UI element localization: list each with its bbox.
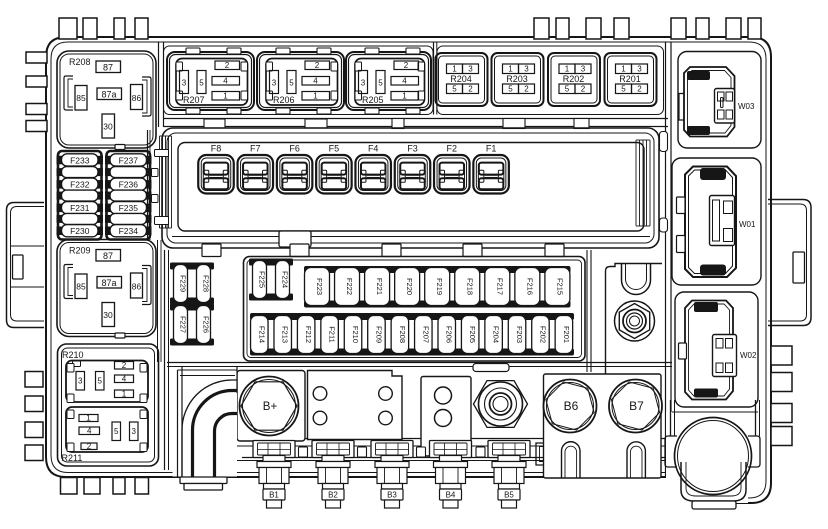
svg-text:F210: F210 xyxy=(351,326,360,343)
svg-text:F222: F222 xyxy=(345,278,354,295)
svg-text:R202: R202 xyxy=(563,74,585,84)
svg-text:3: 3 xyxy=(131,427,136,436)
svg-text:F231: F231 xyxy=(70,203,90,213)
svg-text:87: 87 xyxy=(103,63,113,73)
svg-text:3: 3 xyxy=(468,65,473,74)
svg-text:3: 3 xyxy=(361,79,366,88)
svg-text:4: 4 xyxy=(402,77,407,86)
svg-text:F213: F213 xyxy=(281,326,290,343)
svg-text:5: 5 xyxy=(452,85,457,94)
svg-text:F220: F220 xyxy=(405,278,414,295)
svg-text:1: 1 xyxy=(86,414,91,423)
svg-text:B6: B6 xyxy=(564,399,579,413)
svg-text:F223: F223 xyxy=(315,278,324,295)
svg-text:30: 30 xyxy=(103,310,113,320)
svg-text:5: 5 xyxy=(508,85,513,94)
svg-text:F4: F4 xyxy=(368,144,379,154)
svg-text:85: 85 xyxy=(76,282,86,292)
svg-text:2: 2 xyxy=(122,361,127,370)
svg-text:2: 2 xyxy=(581,85,586,94)
svg-text:1: 1 xyxy=(565,65,570,74)
svg-text:2: 2 xyxy=(468,85,473,94)
svg-text:R203: R203 xyxy=(506,74,528,84)
svg-text:3: 3 xyxy=(581,65,586,74)
svg-text:F209: F209 xyxy=(374,326,383,343)
svg-text:R201: R201 xyxy=(619,74,641,84)
svg-text:85: 85 xyxy=(76,93,86,103)
svg-text:F206: F206 xyxy=(445,326,454,343)
svg-text:F224: F224 xyxy=(281,271,290,288)
svg-text:3: 3 xyxy=(637,65,642,74)
svg-text:F227: F227 xyxy=(179,316,188,333)
svg-text:1: 1 xyxy=(621,65,626,74)
svg-text:F228: F228 xyxy=(202,275,211,292)
svg-text:B7: B7 xyxy=(629,399,644,413)
svg-text:5: 5 xyxy=(114,427,119,436)
svg-text:5: 5 xyxy=(97,377,102,386)
svg-text:F203: F203 xyxy=(515,326,524,343)
svg-text:1: 1 xyxy=(313,92,318,101)
svg-text:87a: 87a xyxy=(101,90,116,100)
svg-text:3: 3 xyxy=(182,79,187,88)
svg-text:F212: F212 xyxy=(304,326,313,343)
svg-text:F8: F8 xyxy=(211,144,222,154)
svg-text:F1: F1 xyxy=(486,144,497,154)
svg-text:4: 4 xyxy=(223,77,228,86)
svg-text:1: 1 xyxy=(402,92,407,101)
svg-text:B5: B5 xyxy=(504,491,514,500)
svg-text:2: 2 xyxy=(225,61,230,70)
svg-text:F237: F237 xyxy=(119,155,139,165)
svg-text:F2: F2 xyxy=(447,144,458,154)
svg-text:3: 3 xyxy=(78,377,83,386)
svg-text:5: 5 xyxy=(378,79,383,88)
svg-text:F229: F229 xyxy=(179,275,188,292)
svg-text:1: 1 xyxy=(508,65,513,74)
svg-text:R209: R209 xyxy=(69,246,91,256)
svg-text:5: 5 xyxy=(565,85,570,94)
svg-text:5: 5 xyxy=(199,79,204,88)
svg-text:F207: F207 xyxy=(421,326,430,343)
svg-text:5: 5 xyxy=(289,79,294,88)
svg-text:F236: F236 xyxy=(119,180,139,190)
svg-text:B1: B1 xyxy=(269,491,279,500)
svg-text:R210: R210 xyxy=(62,350,84,360)
svg-text:F5: F5 xyxy=(329,144,340,154)
svg-text:R204: R204 xyxy=(450,74,472,84)
svg-text:2: 2 xyxy=(637,85,642,94)
svg-text:B+: B+ xyxy=(263,401,278,413)
svg-text:F235: F235 xyxy=(119,203,139,213)
svg-text:F208: F208 xyxy=(398,326,407,343)
svg-text:F234: F234 xyxy=(119,226,139,236)
svg-text:F217: F217 xyxy=(495,278,504,295)
svg-text:3: 3 xyxy=(272,79,277,88)
svg-text:F226: F226 xyxy=(202,316,211,333)
svg-text:2: 2 xyxy=(315,61,320,70)
svg-text:30: 30 xyxy=(103,122,113,132)
svg-text:F3: F3 xyxy=(407,144,418,154)
svg-text:4: 4 xyxy=(122,375,127,384)
svg-text:F216: F216 xyxy=(525,278,534,295)
svg-text:B2: B2 xyxy=(328,491,338,500)
svg-text:F214: F214 xyxy=(257,326,266,343)
svg-text:F201: F201 xyxy=(562,326,571,343)
svg-text:4: 4 xyxy=(87,427,92,436)
svg-text:87: 87 xyxy=(103,251,113,261)
svg-text:B4: B4 xyxy=(446,491,456,500)
svg-text:F202: F202 xyxy=(538,326,547,343)
svg-text:1: 1 xyxy=(122,390,127,399)
svg-text:F7: F7 xyxy=(250,144,261,154)
svg-text:F219: F219 xyxy=(435,278,444,295)
svg-text:F215: F215 xyxy=(555,278,564,295)
svg-text:4: 4 xyxy=(313,77,318,86)
svg-text:F6: F6 xyxy=(289,144,300,154)
svg-text:F205: F205 xyxy=(468,326,477,343)
svg-text:W01: W01 xyxy=(739,220,756,229)
svg-text:F232: F232 xyxy=(70,180,90,190)
svg-text:2: 2 xyxy=(87,442,92,451)
svg-text:R211: R211 xyxy=(62,453,83,463)
svg-text:B3: B3 xyxy=(387,491,397,500)
svg-text:F230: F230 xyxy=(70,226,90,236)
svg-text:3: 3 xyxy=(524,65,529,74)
svg-text:R206: R206 xyxy=(273,95,295,105)
svg-text:W03: W03 xyxy=(738,102,755,111)
svg-text:1: 1 xyxy=(452,65,457,74)
svg-text:F218: F218 xyxy=(465,278,474,295)
svg-text:W02: W02 xyxy=(740,351,757,360)
svg-text:R208: R208 xyxy=(69,57,91,67)
svg-text:87a: 87a xyxy=(101,278,116,288)
svg-text:1: 1 xyxy=(223,92,228,101)
svg-text:F204: F204 xyxy=(492,326,501,343)
svg-text:2: 2 xyxy=(524,85,529,94)
svg-text:F211: F211 xyxy=(328,326,337,343)
svg-text:R207: R207 xyxy=(183,95,205,105)
svg-text:F233: F233 xyxy=(70,155,90,165)
svg-text:5: 5 xyxy=(621,85,626,94)
svg-text:R205: R205 xyxy=(362,95,384,105)
svg-text:86: 86 xyxy=(132,282,142,292)
svg-text:F225: F225 xyxy=(258,271,267,288)
svg-text:86: 86 xyxy=(132,93,142,103)
svg-text:F221: F221 xyxy=(375,278,384,295)
svg-text:2: 2 xyxy=(404,61,409,70)
